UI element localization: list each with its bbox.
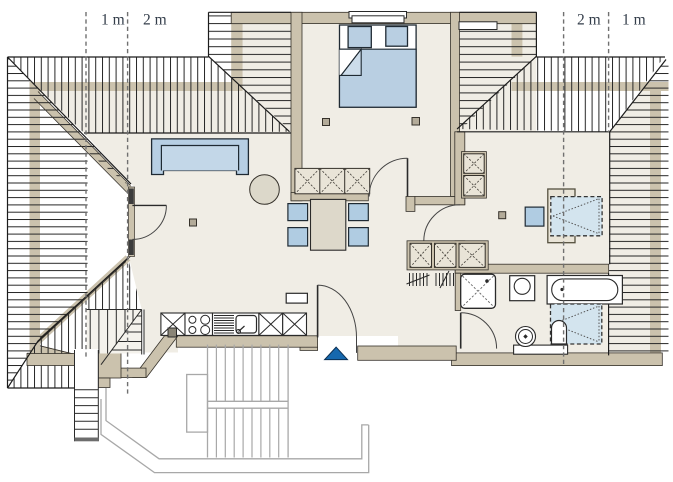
svg-text:2 m: 2 m [577, 12, 601, 29]
svg-text:2 m: 2 m [143, 12, 167, 29]
svg-text:1 m: 1 m [622, 12, 646, 29]
svg-text:1 m: 1 m [101, 12, 125, 29]
